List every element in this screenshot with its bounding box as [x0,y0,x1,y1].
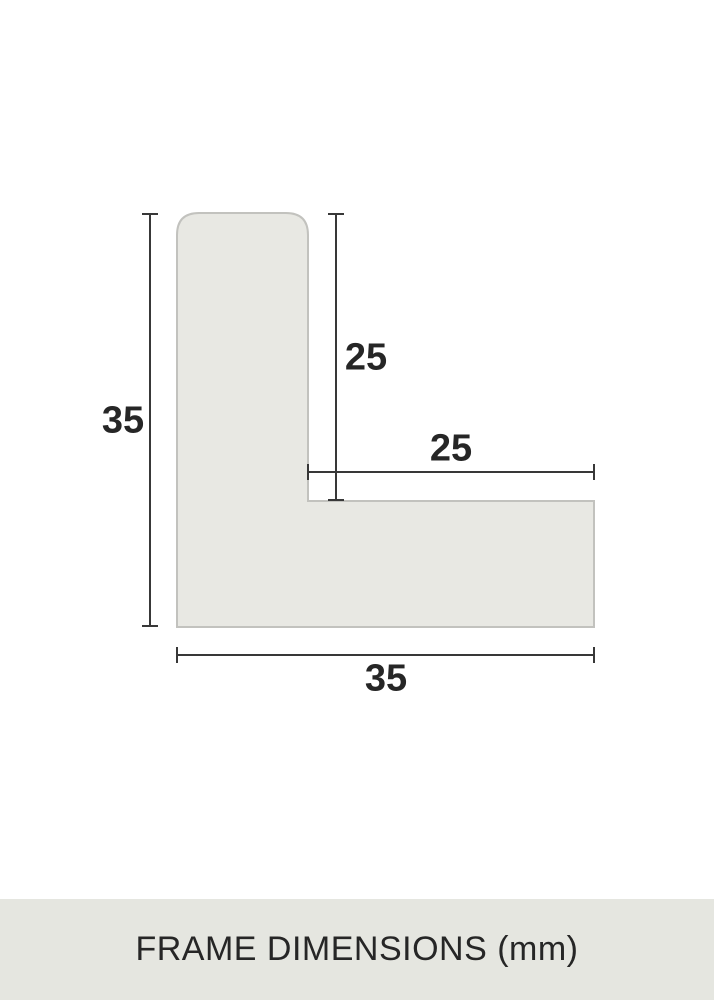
caption-bar: FRAME DIMENSIONS (mm) [0,899,714,1000]
frame-dimension-diagram: 35 25 25 35 FRAME DIMENSIONS (mm) [0,0,714,1000]
dimension-label-overall-width: 35 [365,658,407,701]
dimension-line-inner-height [328,214,344,500]
diagram-canvas [0,0,714,1000]
dimension-line-overall-height [142,214,158,626]
dimension-label-inner-width: 25 [430,428,472,471]
frame-profile-shape [177,213,594,627]
caption-text: FRAME DIMENSIONS (mm) [135,930,578,969]
dimension-label-inner-height: 25 [345,337,387,380]
dimension-label-overall-height: 35 [102,400,144,443]
